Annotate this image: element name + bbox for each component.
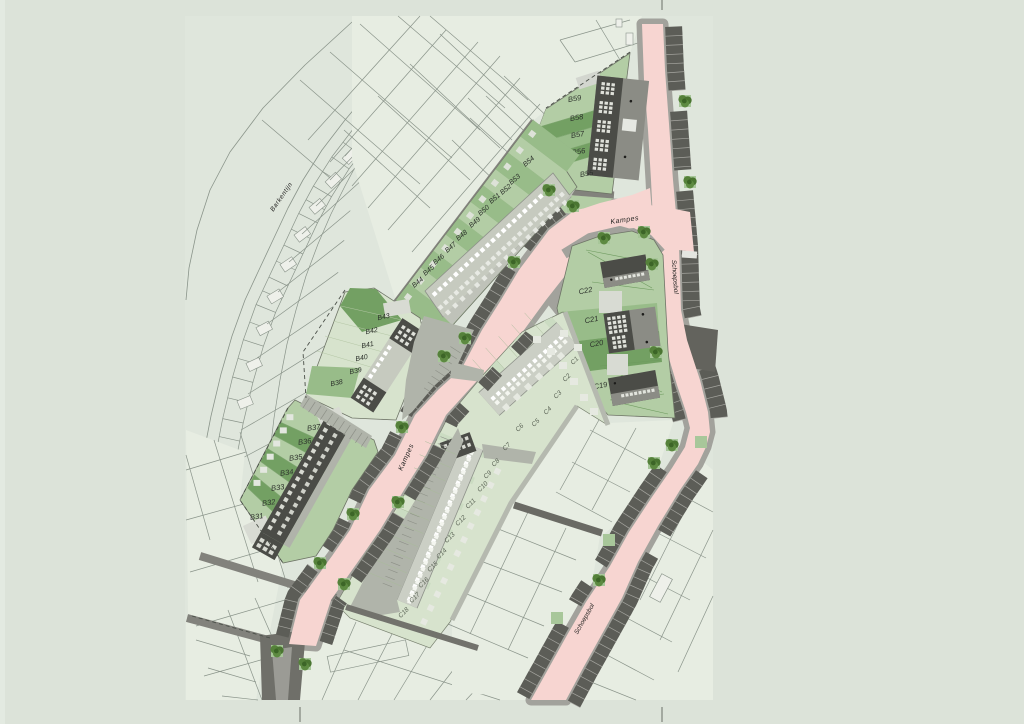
svg-text:B31: B31 xyxy=(249,511,263,522)
svg-text:B34: B34 xyxy=(279,467,293,478)
